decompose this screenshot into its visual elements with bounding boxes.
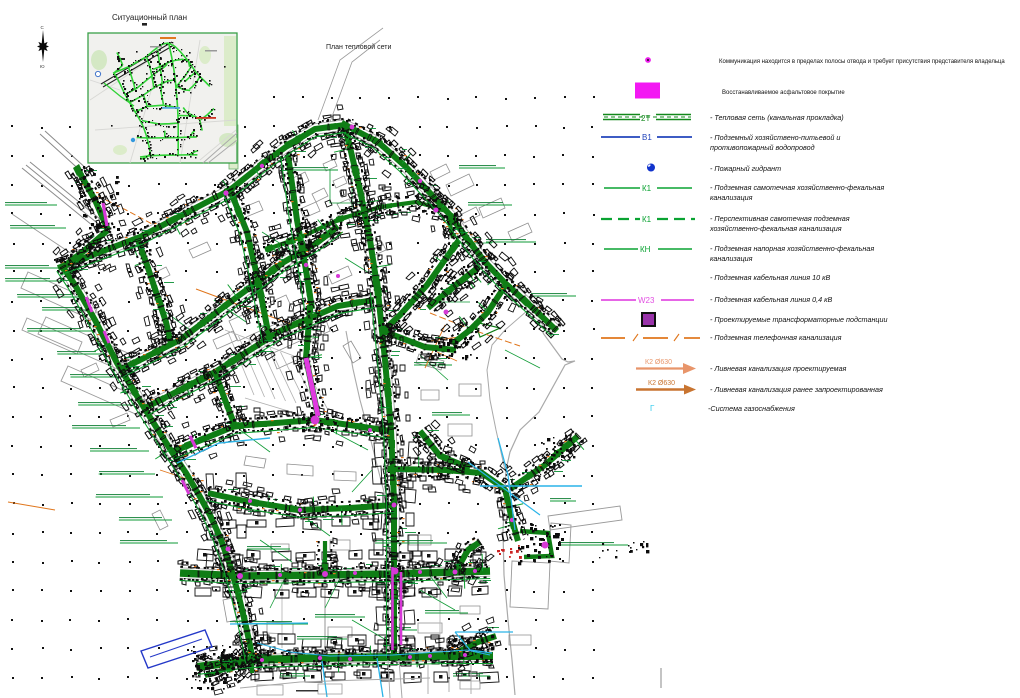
svg-text:К2 Ø630: К2 Ø630 [645,359,672,366]
svg-text:противопожарный водопровод: противопожарный водопровод [710,143,815,152]
svg-text:-Система газоснабжения: -Система газоснабжения [708,404,795,413]
svg-text:- Подземная напорная хозяйстве: - Подземная напорная хозяйственно-фекаль… [710,244,874,253]
svg-text:К1: К1 [642,215,652,224]
svg-text:Ситуационный план: Ситуационный план [112,13,187,22]
svg-text:Ю: Ю [40,64,45,69]
svg-text:КН: КН [640,245,651,254]
svg-text:План тепловой сети: План тепловой сети [326,43,391,51]
svg-text:- Подземная кабельная линия 0,: - Подземная кабельная линия 0,4 кВ [710,295,832,304]
svg-text:К1: К1 [642,184,652,193]
svg-text:- Подземная телефонная канализ: - Подземная телефонная канализация [710,333,842,342]
svg-text:канализация: канализация [710,254,753,263]
svg-text:К2 Ø630: К2 Ø630 [648,380,675,387]
svg-text:- Подземная самотечная хозяйст: - Подземная самотечная хозяйственно-фека… [710,183,884,192]
svg-text:В1: В1 [642,133,652,142]
svg-text:- Ливневая канализация проекти: - Ливневая канализация проектируемая [710,364,847,373]
svg-text:Коммуникация находится в преде: Коммуникация находится в пределах полосы… [719,59,1005,65]
svg-text:Восстанавливаемое асфальтовое: Восстанавливаемое асфальтовое покрытие [722,90,845,96]
svg-text:- Тепловая сеть (канальная про: - Тепловая сеть (канальная прокладка) [710,113,844,122]
svg-text:- Ливневая канализация ранее з: - Ливневая канализация ранее запроектиро… [710,385,883,394]
svg-text:- Пожарный гидрант: - Пожарный гидрант [710,164,781,173]
svg-text:- Перспективная самотечная под: - Перспективная самотечная подземная [710,214,850,223]
svg-text:2Т: 2Т [641,114,650,123]
svg-text:- Проектируемые трансформаторн: - Проектируемые трансформаторные подстан… [710,315,888,324]
svg-text:W23: W23 [638,296,655,305]
svg-text:хозяйственно-фекальная канализ: хозяйственно-фекальная канализация [709,224,842,233]
svg-text:канализация: канализация [710,193,753,202]
svg-text:- Подземная кабельная линия 10: - Подземная кабельная линия 10 кВ [710,273,831,282]
svg-text:- Подземный хозяйствено-питьев: - Подземный хозяйствено-питьевой и [710,133,840,142]
svg-text:Г: Г [650,404,655,413]
